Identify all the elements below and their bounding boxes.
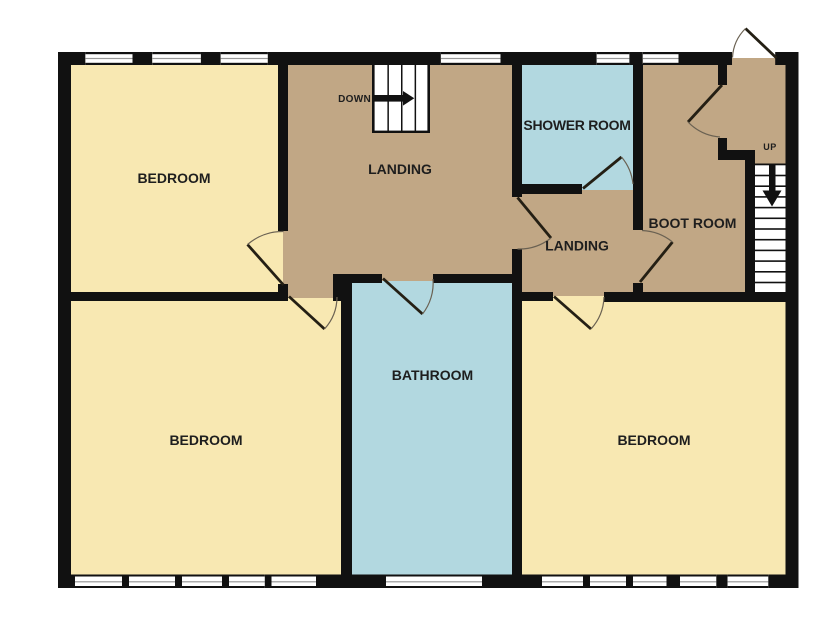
svg-text:BATHROOM: BATHROOM	[392, 367, 473, 383]
svg-text:SHOWER ROOM: SHOWER ROOM	[523, 117, 630, 133]
svg-text:LANDING: LANDING	[545, 238, 609, 254]
svg-text:DOWN: DOWN	[338, 94, 371, 105]
svg-text:UP: UP	[763, 142, 777, 152]
svg-text:BEDROOM: BEDROOM	[169, 432, 242, 448]
svg-text:BEDROOM: BEDROOM	[137, 170, 210, 186]
svg-text:BEDROOM: BEDROOM	[617, 432, 690, 448]
svg-text:LANDING: LANDING	[368, 161, 432, 177]
svg-text:BOOT ROOM: BOOT ROOM	[649, 215, 737, 231]
